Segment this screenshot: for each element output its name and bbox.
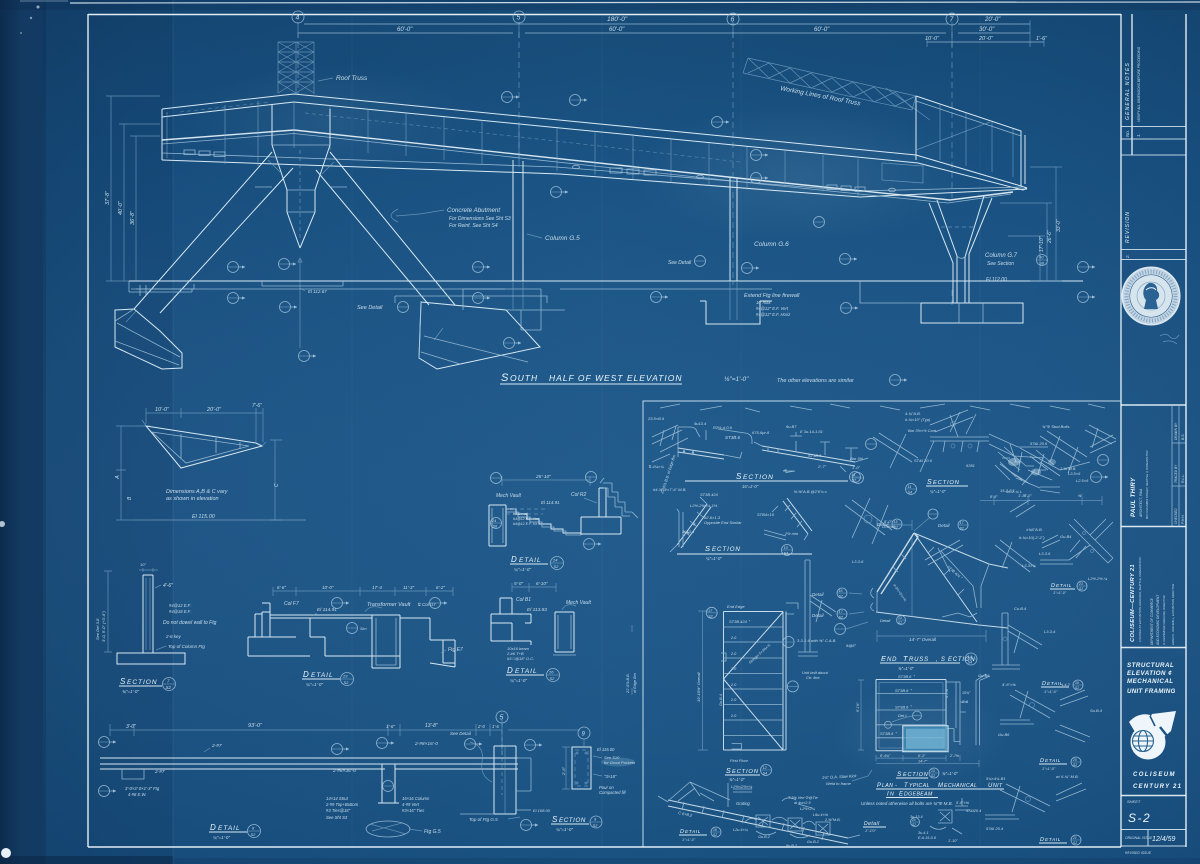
svg-text:Ftg G.5: Ftg G.5 [424,829,441,835]
svg-text:6'-2": 6'-2" [436,585,445,590]
svg-text:Detail: Detail [864,821,880,827]
svg-text:ETAIL: ETAIL [1056,583,1072,589]
svg-text:TRACED BY: TRACED BY [1174,464,1178,483]
svg-text:4'-6": 4'-6" [163,583,173,589]
svg-text:S: S [726,768,731,775]
svg-text:#-¾×10(-2'-2"): #-¾×10(-2'-2") [1019,535,1045,540]
svg-text:R.L.L.: R.L.L. [1181,474,1185,483]
svg-text:RUSS: RUSS [909,657,929,663]
svg-text:ST3B.6: ST3B.6 [808,453,822,458]
svg-text:16×16 Column: 16×16 Column [402,796,430,801]
svg-text:1'-10": 1'-10" [948,839,958,843]
svg-text:18: 18 [713,828,717,832]
svg-text:PAUL THIRY: PAUL THIRY [1130,477,1137,517]
svg-text:ECTION: ECTION [712,546,741,553]
svg-text:23: 23 [342,674,348,679]
svg-text:21'-6⅞ B.B.: 21'-6⅞ B.B. [626,673,630,694]
svg-text:5'-6"×⅜: 5'-6"×⅜ [956,801,970,805]
svg-text:S2: S2 [1079,587,1083,591]
svg-text:24: 24 [491,519,496,523]
svg-text:2'-6": 2'-6" [561,766,566,776]
svg-text:L2½-2½×¼-1½: L2½-2½×¼-1½ [690,503,718,508]
svg-text:1'-6": 1'-6" [1036,36,1048,42]
svg-text:Col R2: Col R2 [571,492,587,498]
svg-text:Concrete Abutment: Concrete Abutment [447,207,500,214]
svg-text:2.0: 2.0 [730,714,737,718]
svg-text:Grating: Grating [736,801,750,806]
svg-text:Column G.5: Column G.5 [545,235,580,242]
svg-text:D: D [680,829,685,835]
svg-text:8'-5": 8'-5" [990,495,998,499]
svg-text:ETAIL: ETAIL [1047,681,1063,687]
svg-text:ECHANICAL: ECHANICAL [944,783,977,789]
svg-text:14: 14 [968,655,972,659]
svg-text:D: D [1042,681,1047,687]
svg-text:37'-8": 37'-8" [105,190,111,205]
svg-text:11'-3": 11'-3" [403,585,415,590]
svg-text:#3×16" Ties: #3×16" Ties [402,808,425,813]
svg-text:10": 10" [140,562,146,567]
svg-text:#3 □@18" O.C.: #3 □@18" O.C. [507,656,534,661]
svg-text:5u.B.2: 5u.B.2 [786,844,798,848]
svg-text:D: D [507,666,514,675]
svg-text:Opposite End Similar: Opposite End Similar [704,520,742,525]
svg-text:Gu.B6: Gu.B6 [998,732,1010,737]
svg-text:ECTION: ECTION [933,480,960,486]
svg-text:¼"=1'-0": ¼"=1'-0" [306,682,323,687]
svg-text:10'-0": 10'-0" [322,585,334,590]
svg-text:S2: S2 [708,614,712,618]
svg-text:14'-7": 14'-7" [918,760,928,764]
svg-text:#4@12 E.F.: #4@12 E.F. [169,603,191,608]
svg-text:ORIGINAL ISSUE: ORIGINAL ISSUE [1125,836,1153,840]
svg-text:R2½-4-0.6: R2½-4-0.6 [713,425,733,430]
svg-text:5'-0": 5'-0" [514,581,523,586]
svg-text:1"=1'-0": 1"=1'-0" [1042,767,1056,771]
svg-text:¼"=1'-0": ¼"=1'-0" [514,567,531,572]
svg-text:L3-3.6: L3-3.6 [1039,551,1051,556]
svg-text:3u.13.4: 3u.13.4 [910,815,923,819]
svg-text:S2: S2 [554,564,560,569]
svg-text:¾"Φ Stud Bolts: ¾"Φ Stud Bolts [1042,424,1069,429]
svg-text:12/4/59: 12/4/59 [1152,836,1175,843]
svg-text:D: D [303,670,310,679]
svg-text:6u.B7: 6u.B7 [786,424,797,429]
svg-text:See Section: See Section [987,261,1014,267]
svg-text:13'-8": 13'-8" [425,723,438,729]
svg-text:D: D [210,823,217,832]
svg-text:S2: S2 [166,685,172,690]
svg-text:20'-0": 20'-0" [978,36,994,42]
svg-text:#3 Ties@18": #3 Ties@18" [326,808,351,813]
svg-text:2-#8×16'-0: 2-#8×16'-0 [414,741,438,747]
svg-text:S: S [897,771,902,778]
svg-text:ETAIL: ETAIL [685,829,701,835]
svg-text:For Dimensions See Sht S3: For Dimensions See Sht S3 [449,216,511,222]
svg-text:SHEET: SHEET [1127,799,1141,804]
svg-text:HALF OF WEST ELEVATION: HALF OF WEST ELEVATION [549,373,682,383]
svg-text:40'-0": 40'-0" [118,200,124,215]
svg-text:Transformer Vault: Transformer Vault [367,602,411,608]
svg-text:Extend Ftg line firewall: Extend Ftg line firewall [744,293,800,299]
svg-text:Gu.B4: Gu.B4 [1060,534,1072,539]
svg-text:Mech Vault: Mech Vault [496,493,521,499]
svg-text:S: S [552,815,558,824]
svg-text:See Detail: See Detail [668,260,692,266]
svg-text:ST3B.424 ⌝: ST3B.424 ⌝ [729,619,751,624]
svg-text:24: 24 [552,558,558,563]
svg-text:3L13.4: 3L13.4 [682,529,695,534]
svg-text:ARCHITECT, FAIA: ARCHITECT, FAIA [1139,488,1143,518]
svg-text:T-3⅜ Vert Φ@Tie: T-3⅜ Vert Φ@Tie [788,796,818,800]
svg-text:S-2: S-2 [1128,811,1151,825]
svg-text:17'-4: 17'-4 [372,585,382,590]
svg-text:L2½×2¼: L2½×2¼ [800,807,816,811]
svg-text:5: 5 [517,15,521,22]
svg-text:Gu.B6: Gu.B6 [978,673,990,678]
svg-text:L2u.4×¼: L2u.4×¼ [733,828,749,832]
svg-text:60'-0": 60'-0" [397,27,413,33]
svg-text:S4: S4 [763,772,768,776]
svg-text:S2: S2 [1073,763,1077,767]
svg-text:2-⅝"M.B.: 2-⅝"M.B. [824,818,841,822]
svg-text:ST3B.6 ⌝: ST3B.6 ⌝ [898,674,915,679]
svg-text:S: S [927,479,932,486]
svg-text:S2: S2 [839,595,843,599]
svg-text:L2½×2½×¼: L2½×2½×¼ [731,784,753,789]
svg-text:5: 5 [500,715,504,722]
svg-text:Weld to frame: Weld to frame [826,781,852,786]
svg-text:17'-10": 17'-10" [1039,236,1045,252]
svg-text:¾"=1'-0": ¾"=1'-0" [942,771,958,776]
svg-text:13: 13 [898,616,902,620]
svg-text:1'-6: 1'-6 [492,724,500,729]
svg-text:19'-10⅝" Overall: 19'-10⅝" Overall [696,672,701,702]
svg-text:23.5×B.6: 23.5×B.6 [647,416,665,421]
svg-text:#4-⅞"Φ×7'-6" M.B.: #4-⅞"Φ×7'-6" M.B. [653,487,687,492]
svg-text:Dimensions A,B & C vary: Dimensions A,B & C vary [166,489,229,495]
svg-text:2-#7: 2-#7 [154,769,165,775]
svg-text:S2: S2 [1073,841,1077,845]
svg-text:L4.2: L4.2 [1062,682,1071,687]
svg-text:ETAIL: ETAIL [218,825,241,832]
svg-text:26'-6": 26'-6" [1047,230,1053,244]
svg-text:Detail: Detail [938,523,951,528]
svg-text:6'-6": 6'-6" [277,585,286,590]
svg-text:Bar 3½: Bar 3½ [850,456,864,461]
svg-text:See Detail: See Detail [357,305,383,311]
svg-text:I: I [887,792,889,798]
svg-text:ECTION: ECTION [743,474,774,481]
svg-text:Roof Truss: Roof Truss [336,75,368,82]
svg-text:2'-7": 2'-7" [817,464,827,469]
svg-text:16'=1'-0": 16'=1'-0" [742,484,759,489]
svg-text:¼"=1'-0": ¼"=1'-0" [213,835,230,840]
svg-text:3-3-1.6 with ⅝" C.A.B.: 3-3-1.6 with ⅝" C.A.B. [797,638,836,643]
svg-text:14×14 Strut: 14×14 Strut [326,796,349,801]
svg-text:S2: S2 [912,823,916,827]
svg-text:Gu.B.4: Gu.B.4 [719,694,723,706]
svg-text:S2: S2 [839,616,843,620]
svg-text:ECTION: ECTION [127,679,158,686]
svg-text:14'-7" Overall: 14'-7" Overall [909,637,937,642]
svg-text:13: 13 [931,769,935,773]
svg-text:ETAIL: ETAIL [515,668,538,675]
svg-text:ST3B.6 ⌝: ST3B.6 ⌝ [895,688,912,693]
svg-text:L6u.4×⅛: L6u.4×⅛ [813,813,829,817]
svg-text:3u.4.1: 3u.4.1 [918,831,929,835]
svg-text:⅛"=1'-0": ⅛"=1'-0" [724,376,749,383]
svg-text:¼"=1'-0": ¼"=1'-0" [510,678,527,683]
svg-text:Detail: Detail [812,613,825,618]
svg-text:GENERAL NOTES: GENERAL NOTES [1125,62,1131,120]
svg-text:2.0: 2.0 [730,683,737,687]
svg-text:ETAIL: ETAIL [311,672,334,679]
svg-text:26: 26 [548,670,554,675]
svg-text:3'-0": 3'-0" [126,724,136,730]
svg-text:60'-0": 60'-0" [814,27,830,33]
svg-text:NIT: NIT [993,783,1003,789]
svg-text:2'-6: 2'-6 [961,700,968,704]
svg-text:2.0: 2.0 [730,652,737,656]
svg-text:Sim: Sim [360,627,367,631]
svg-text:16: 16 [839,589,843,593]
svg-text:YPICAL: YPICAL [909,783,930,789]
svg-text:60'-0": 60'-0" [609,27,625,33]
svg-text:Detail: Detail [880,618,890,623]
svg-text:D: D [1040,837,1045,843]
svg-text:S2: S2 [550,676,556,681]
svg-text:675-6pr-6: 675-6pr-6 [752,430,770,435]
svg-text:#4@12 E.F. Hz: #4@12 E.F. Hz [513,522,537,526]
svg-text:2-#7: 2-#7 [211,743,222,749]
svg-text:DGEBEAM: DGEBEAM [904,792,933,798]
svg-text:ST3B.6: ST3B.6 [725,435,741,440]
svg-text:S2: S2 [931,774,935,778]
svg-text:ST3B.424: ST3B.424 [700,492,719,497]
svg-text:#4@12 E.F. Vert: #4@12 E.F. Vert [513,517,540,521]
svg-text:L3-3×¼: L3-3×¼ [1022,563,1036,568]
svg-text:6: 6 [731,17,735,24]
svg-text:ECTION: ECTION [732,769,759,775]
svg-text:ETAIL: ETAIL [1045,758,1061,764]
svg-text:B.S.: B.S. [1181,434,1185,440]
svg-text:Column G.7: Column G.7 [985,253,1018,259]
svg-text:2'-0: 2'-0 [477,724,486,729]
svg-text:El 113.83: El 113.83 [527,607,547,613]
svg-text:57&I 20.6: 57&I 20.6 [1030,441,1048,446]
svg-text:Cu.B.4: Cu.B.4 [1014,606,1027,611]
svg-text:STB4×16: STB4×16 [757,512,775,517]
svg-text:L3.5×6: L3.5×6 [1068,471,1081,476]
svg-text:21: 21 [1072,836,1077,840]
svg-text:S2: S2 [593,823,599,828]
svg-text:2-⅝"M.B.: 2-⅝"M.B. [1059,466,1077,471]
svg-text:E.A.15-0.6: E.A.15-0.6 [918,836,937,840]
svg-text:Gu.B.2: Gu.B.2 [807,840,820,844]
svg-text:End Edge: End Edge [727,604,745,609]
svg-text:S2: S2 [344,680,350,685]
svg-text:¾"=1'-0": ¾"=1'-0" [729,777,745,782]
svg-text:6'-3": 6'-3" [918,754,926,758]
svg-text:¼"=1'-0": ¼"=1'-0" [930,489,946,494]
svg-text:¾"=1'-0": ¾"=1'-0" [122,689,139,694]
svg-text:Col F7: Col F7 [284,601,299,607]
svg-text:1"=1'-0": 1"=1'-0" [1053,591,1067,595]
svg-text:D: D [1051,583,1056,589]
svg-text:ND: ND [887,657,897,663]
svg-text:ETAIL: ETAIL [519,557,542,564]
svg-text:4: 4 [296,15,300,22]
svg-text:3'-0, 5'-0" (+3'-6"): 3'-0, 5'-0" (+3'-6") [101,611,106,642]
svg-text:LOCATED AT EXPOSITION GROUNDS,: LOCATED AT EXPOSITION GROUNDS, SEATTLE, … [1138,557,1142,642]
svg-text:S: S [736,472,742,481]
svg-text:ST3B.6 ⌝: ST3B.6 ⌝ [880,731,897,736]
svg-text:DEPARTMENT OF COMMERCE: DEPARTMENT OF COMMERCE [1150,597,1154,645]
svg-text:Do not dowel wall to Ftg: Do not dowel wall to Ftg [163,620,217,626]
svg-text:4'-7⅞: 4'-7⅞ [945,689,949,698]
svg-text:A. DENSMORE GREGOIR, DIRECTOR: A. DENSMORE GREGOIR, DIRECTOR [1162,595,1166,646]
svg-text:33'-0": 33'-0" [1056,219,1062,232]
svg-text:1'-6": 1'-6" [386,724,395,729]
svg-text:19: 19 [1075,681,1079,685]
svg-text:20: 20 [1072,758,1077,762]
svg-text:3'-0×3'-0×1'-3" Ftg: 3'-0×3'-0×1'-3" Ftg [125,786,160,791]
svg-text:#4@18 E.F.: #4@18 E.F. [169,609,191,614]
svg-text:El 108.00: El 108.00 [533,808,551,813]
svg-text:4-#8 E.W.: 4-#8 E.W. [128,792,147,797]
svg-text:57&I 20.4: 57&I 20.4 [986,826,1004,831]
svg-text:9u13.4: 9u13.4 [694,421,707,426]
svg-text:L2.5×6: L2.5×6 [1076,478,1089,483]
svg-text:6@8": 6@8" [846,643,857,648]
svg-text:2.0: 2.0 [730,698,737,702]
svg-text:REVISED ISSUE: REVISED ISSUE [1125,851,1152,855]
svg-text:2.: 2. [1125,254,1130,259]
svg-text:¼"=1'-0": ¼"=1'-0" [556,827,573,832]
svg-text:Su.B.4: Su.B.4 [1090,708,1103,713]
svg-text:#5 Dowel: #5 Dowel [513,512,528,516]
svg-text:A: A [115,475,121,480]
svg-text:2.0: 2.0 [730,667,737,671]
svg-text:S2: S2 [960,527,964,531]
svg-text:Unless noted otherwise all bol: Unless noted otherwise all bolts are ¾"Φ… [861,801,953,806]
svg-text:as shown in elevation: as shown in elevation [166,496,219,502]
svg-text:1"=1'-0": 1"=1'-0" [682,838,696,842]
svg-text:S4: S4 [784,552,789,556]
svg-text:D: D [511,555,518,564]
svg-text:2.0: 2.0 [730,636,737,640]
svg-text:COLISEUM—CENTURY 21: COLISEUM—CENTURY 21 [1130,564,1136,642]
svg-text:w/ 6-¾" M.B.: w/ 6-¾" M.B. [1056,774,1079,779]
svg-text:First Floor: First Floor [730,758,749,763]
svg-text:L3-3.4: L3-3.4 [1044,629,1056,634]
svg-text:180'-0": 180'-0" [607,16,628,23]
svg-text:ST&I 20.6: ST&I 20.6 [914,458,933,463]
svg-text:"3×18": "3×18" [604,774,617,779]
svg-text:S2: S2 [898,621,902,625]
svg-text:#-¾×10" (Typ): #-¾×10" (Typ) [905,417,931,422]
svg-text:N: N [890,792,894,798]
svg-text:#4@12" E.F. Horiz: #4@12" E.F. Horiz [756,312,791,317]
svg-text:⇅ 4¼×¼: ⇅ 4¼×¼ [648,464,664,469]
svg-text:, S: , S [936,657,946,663]
svg-text:at 4w×2.5: at 4w×2.5 [794,801,811,805]
svg-text:STRUCTURAL: STRUCTURAL [1127,662,1174,669]
svg-text:El 115.00: El 115.00 [597,747,615,752]
svg-text:7'-6": 7'-6" [252,403,262,409]
svg-text:1.: 1. [1136,133,1141,137]
svg-text:1"=1'-0": 1"=1'-0" [1044,690,1058,694]
svg-text:S2: S2 [1075,686,1079,690]
svg-text:5'-0": 5'-0" [1024,494,1032,498]
svg-text:93'-0": 93'-0" [248,723,263,729]
svg-text:1'-0": 1'-0" [852,465,861,470]
svg-text:Detail: Detail [812,592,825,597]
svg-text:CENTURY 21: CENTURY 21 [1133,784,1182,790]
svg-text:±¾6"A.B.: ±¾6"A.B. [1026,527,1043,532]
svg-text:25'-10": 25'-10" [535,474,551,480]
svg-text:6351: 6351 [966,463,975,468]
svg-text:23: 23 [1078,582,1083,586]
svg-text:16-2-¼ L: 16-2-¼ L [1006,489,1022,494]
svg-text:VERIFY ALL DIMENSIONS BEFORE P: VERIFY ALL DIMENSIONS BEFORE PROCEEDING [1137,46,1141,122]
svg-text:EWEN C. DINGWALL, EXPOSITION D: EWEN C. DINGWALL, EXPOSITION DIRECTOR [1171,584,1175,645]
svg-text:¾"=1'-0": ¾"=1'-0" [898,666,914,671]
svg-text:6'-10": 6'-10" [536,581,548,586]
svg-text:No.: No. [1125,130,1130,137]
svg-text:Ftg E7: Ftg E7 [448,647,463,653]
svg-text:8'-4¾": 8'-4¾" [880,754,891,758]
svg-text:P.H.H.: P.H.H. [1181,514,1185,524]
svg-text:#4@12" E.F. Vert: #4@12" E.F. Vert [756,306,789,311]
svg-text:10' max: 10' max [756,300,771,305]
svg-text:P: P [877,783,881,789]
svg-text:CHECKED: CHECKED [1174,508,1178,524]
svg-text:El 112.67: El 112.67 [308,289,327,294]
svg-text:Compacted fill: Compacted fill [599,790,627,795]
svg-text:2½ min: 2½ min [784,531,799,536]
svg-text:1"-1'0": 1"-1'0" [865,829,877,833]
svg-text:See Detail: See Detail [450,731,472,736]
svg-text:Bar 3½×½ Cont: Bar 3½×½ Cont [908,428,937,433]
svg-text:4'-6"×⅝: 4'-6"×⅝ [1002,682,1016,687]
svg-text:See Sht S3: See Sht S3 [326,815,348,820]
svg-text:El 114.91: El 114.91 [541,500,560,505]
svg-text:ECTION: ECTION [903,772,929,778]
svg-text:ETAIL: ETAIL [1045,837,1061,843]
svg-text:Col B1: Col B1 [516,597,531,603]
svg-text:UNIT FRAMING: UNIT FRAMING [1127,688,1176,695]
svg-text:Top of Ftg G.5: Top of Ftg G.5 [469,817,498,822]
svg-text:2'-7⅝: 2'-7⅝ [949,754,959,758]
svg-text:for Grout Pockets: for Grout Pockets [604,760,635,765]
svg-text:Top of Column Ftg: Top of Column Ftg [168,644,205,649]
svg-text:MECHANICAL: MECHANICAL [1127,678,1174,685]
svg-text:5¼×4¼ B1: 5¼×4¼ B1 [986,776,1005,781]
svg-text:El 112.00: El 112.00 [986,277,1007,283]
svg-text:20'-0": 20'-0" [206,407,222,413]
svg-text:2-6 key: 2-6 key [165,634,182,639]
svg-text:of Edge Bm: of Edge Bm [633,673,637,693]
svg-text:Overall: Overall [882,524,895,529]
svg-text:S4: S4 [968,661,973,665]
svg-text:ECTION: ECTION [559,817,586,824]
svg-text:Gu.B.2: Gu.B.2 [758,835,771,839]
svg-text:10¾": 10¾" [962,691,971,695]
svg-text:S2: S2 [713,833,717,837]
svg-text:AND ECONOMIC DEVELOPMENT: AND ECONOMIC DEVELOPMENT [1156,594,1160,646]
